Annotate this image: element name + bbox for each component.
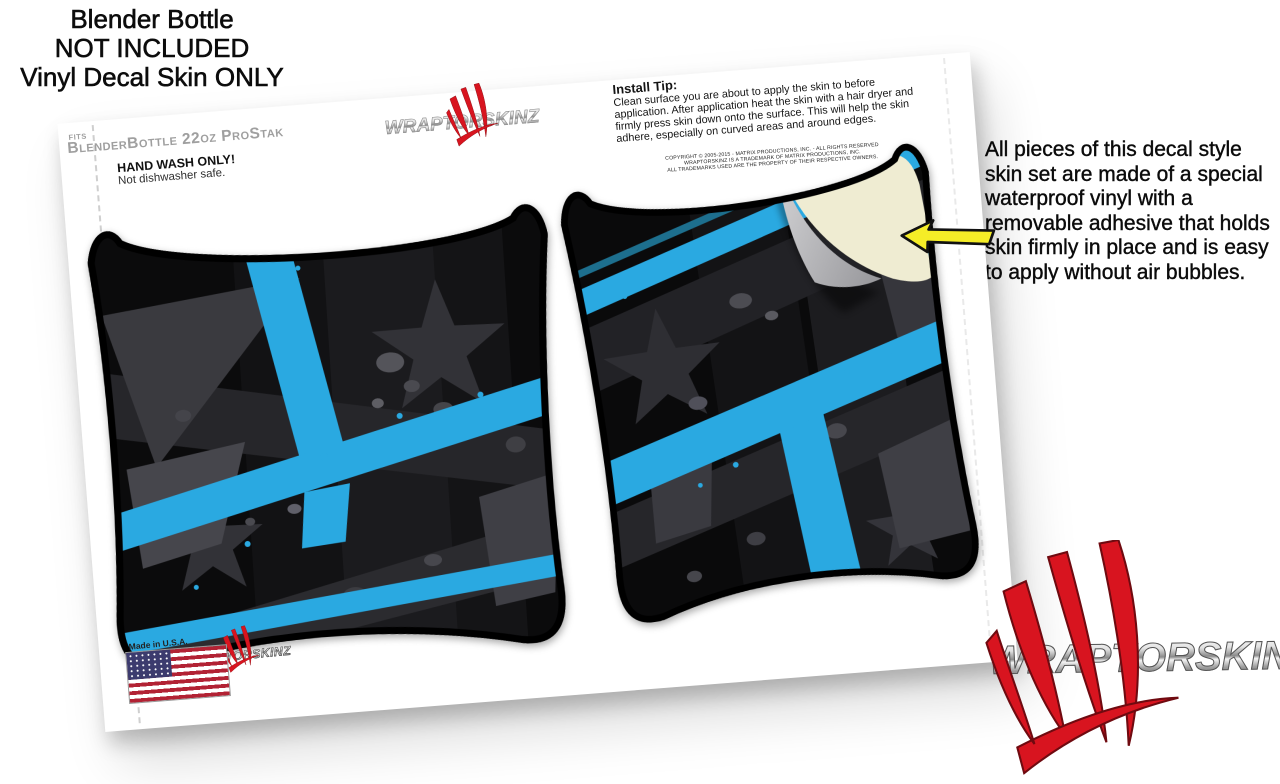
made-in-usa: Made in U.S.A. [124, 633, 231, 704]
hand-wash-warning: HAND WASH ONLY! Not dishwasher safe. [117, 152, 237, 187]
caption-line-3: Vinyl Decal Skin ONLY [2, 63, 302, 92]
decal-sheet: FITS BlenderBottle 22oz ProStak HAND WAS… [57, 52, 1017, 732]
claw-logo-icon [442, 81, 501, 149]
caption-line-2: NOT INCLUDED [2, 34, 302, 63]
brand-logo-large: WraptorSkinz [975, 540, 1280, 784]
adhesive-note: All pieces of this decal style skin set … [985, 138, 1273, 285]
product-mockup: Blender Bottle NOT INCLUDED Vinyl Decal … [0, 0, 1280, 784]
usa-flag-icon [125, 644, 231, 704]
decal-panel-left [80, 192, 579, 681]
disclaimer-caption: Blender Bottle NOT INCLUDED Vinyl Decal … [2, 5, 302, 92]
flag-canton [126, 650, 172, 680]
claw-logo-icon [975, 540, 1183, 780]
decal-panel-right [549, 118, 995, 654]
caption-line-1: Blender Bottle [2, 5, 302, 34]
brand-logo-small: WraptorSkinz [382, 77, 562, 166]
fits-label: FITS BlenderBottle 22oz ProStak [66, 116, 284, 158]
